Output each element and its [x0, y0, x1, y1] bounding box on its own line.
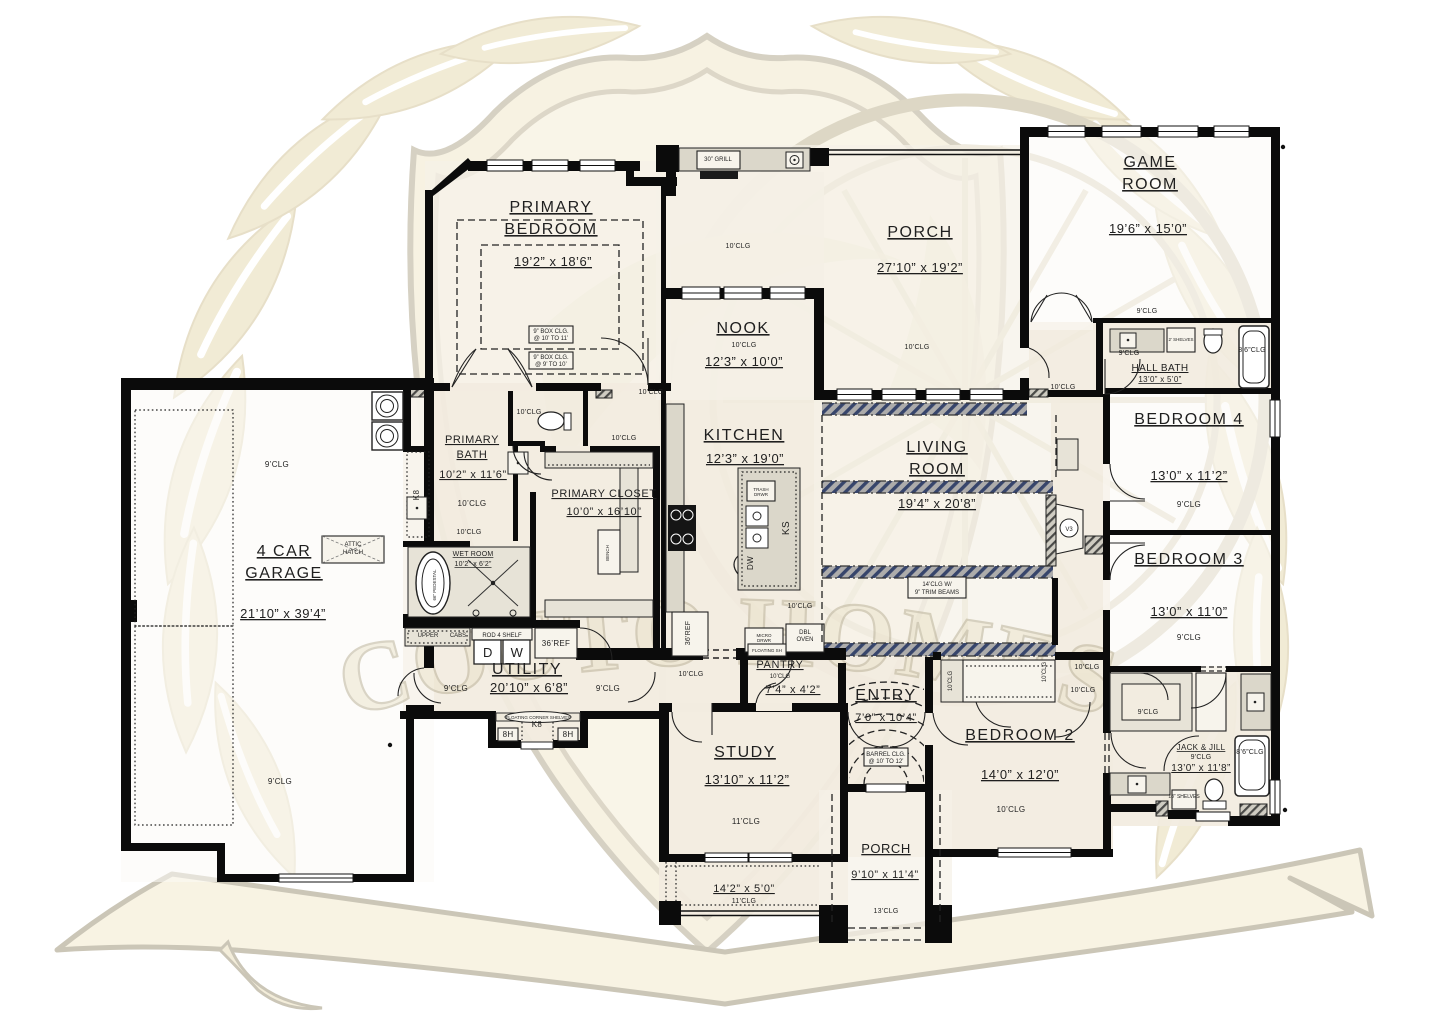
svg-text:WET ROOM: WET ROOM — [453, 551, 494, 558]
svg-text:10’CLG: 10’CLG — [517, 409, 542, 416]
svg-text:19’4” x 20’8”: 19’4” x 20’8” — [898, 496, 976, 511]
svg-text:36’REF: 36’REF — [542, 639, 570, 648]
svg-text:BEDROOM: BEDROOM — [504, 221, 597, 238]
svg-text:9” TRIM BEAMS: 9” TRIM BEAMS — [915, 590, 959, 596]
svg-text:21’10” x 39’4”: 21’10” x 39’4” — [240, 606, 326, 621]
svg-text:9” BOX CLG.: 9” BOX CLG. — [533, 329, 569, 335]
svg-text:36’REF: 36’REF — [685, 621, 692, 646]
svg-text:@ 10’ TO 11’: @ 10’ TO 11’ — [534, 336, 569, 342]
svg-text:14’CLG W/: 14’CLG W/ — [922, 582, 952, 588]
svg-text:9’CLG: 9’CLG — [268, 777, 292, 786]
svg-text:13’10” x 11’2”: 13’10” x 11’2” — [705, 772, 790, 787]
svg-text:10’CLG: 10’CLG — [732, 342, 757, 349]
svg-text:CABS: CABS — [450, 633, 466, 639]
svg-text:10’CLG: 10’CLG — [997, 805, 1026, 814]
svg-text:10’CLG: 10’CLG — [458, 499, 487, 508]
svg-text:8H: 8H — [563, 730, 574, 739]
svg-text:V3: V3 — [1065, 527, 1073, 533]
svg-text:JACK & JILL: JACK & JILL — [1177, 743, 1226, 752]
svg-text:NOOK: NOOK — [716, 320, 769, 337]
svg-text:9’10” x 11’4”: 9’10” x 11’4” — [851, 869, 919, 881]
svg-text:BENCH: BENCH — [605, 545, 610, 561]
svg-text:10’CLG: 10’CLG — [1071, 687, 1096, 694]
svg-text:BATH: BATH — [457, 449, 488, 461]
svg-text:UPPER: UPPER — [418, 633, 439, 639]
svg-text:FLOATING SH: FLOATING SH — [752, 648, 782, 653]
svg-text:K8: K8 — [412, 490, 421, 501]
svg-text:HATCH: HATCH — [343, 550, 363, 556]
svg-text:BEDROOM 3: BEDROOM 3 — [1134, 551, 1244, 568]
svg-text:BEDROOM 4: BEDROOM 4 — [1134, 411, 1244, 428]
svg-text:10’CLG: 10’CLG — [1042, 661, 1048, 682]
svg-text:9’CLG: 9’CLG — [1138, 709, 1159, 716]
svg-text:K8: K8 — [532, 720, 543, 729]
svg-text:14’0” x 12’0”: 14’0” x 12’0” — [981, 767, 1059, 782]
svg-text:13’0” x 11’0”: 13’0” x 11’0” — [1150, 604, 1227, 619]
svg-text:18” SHELVES: 18” SHELVES — [1168, 794, 1200, 800]
svg-text:9” BOX CLG.: 9” BOX CLG. — [533, 355, 569, 361]
svg-text:10’CLG: 10’CLG — [770, 674, 791, 680]
svg-text:11’CLG: 11’CLG — [732, 817, 760, 826]
svg-text:10’2” x 11’6”: 10’2” x 11’6” — [439, 469, 507, 481]
svg-text:PORCH: PORCH — [861, 841, 910, 856]
svg-text:9’CLG: 9’CLG — [1119, 350, 1140, 357]
svg-text:10’CLG: 10’CLG — [788, 603, 813, 610]
svg-text:PRIMARY: PRIMARY — [509, 199, 592, 216]
svg-text:DW: DW — [746, 556, 755, 570]
svg-text:ROD 4 SHELF: ROD 4 SHELF — [482, 633, 522, 639]
svg-text:ROOM: ROOM — [909, 461, 965, 478]
svg-text:9’CLG: 9’CLG — [1177, 500, 1201, 509]
svg-text:PORCH: PORCH — [887, 224, 952, 241]
svg-text:GAME: GAME — [1123, 154, 1176, 171]
svg-text:14’2” x 5’0”: 14’2” x 5’0” — [713, 883, 775, 895]
svg-text:10’CLG: 10’CLG — [726, 243, 751, 250]
svg-text:10’CLG: 10’CLG — [612, 435, 637, 442]
svg-text:12’3” x 19’0”: 12’3” x 19’0” — [706, 451, 784, 466]
svg-text:10’CLG: 10’CLG — [948, 670, 954, 691]
svg-text:30” GRILL: 30” GRILL — [704, 157, 732, 163]
svg-text:KS: KS — [781, 521, 792, 535]
svg-text:2’ SHELVES: 2’ SHELVES — [1168, 337, 1193, 342]
svg-text:8H: 8H — [503, 730, 514, 739]
svg-text:UTILITY: UTILITY — [492, 661, 562, 678]
svg-text:DBL: DBL — [799, 630, 811, 636]
svg-text:ATTIC: ATTIC — [345, 542, 363, 548]
svg-text:@ 10’ TO 12’: @ 10’ TO 12’ — [869, 759, 904, 765]
svg-text:BARREL CLG.: BARREL CLG. — [866, 752, 906, 758]
svg-text:10’CLG: 10’CLG — [1075, 664, 1100, 671]
svg-text:BEDROOM 2: BEDROOM 2 — [965, 727, 1075, 744]
svg-text:DRWR: DRWR — [757, 638, 772, 643]
svg-text:GARAGE: GARAGE — [245, 565, 322, 582]
svg-text:13’0” x 11’8”: 13’0” x 11’8” — [1171, 763, 1231, 774]
svg-text:PRIMARY: PRIMARY — [445, 434, 499, 446]
svg-text:10’CLG: 10’CLG — [679, 671, 704, 678]
svg-text:7’0” x 10’4”: 7’0” x 10’4” — [855, 712, 917, 724]
svg-text:66” PEDESTAL: 66” PEDESTAL — [432, 569, 437, 600]
svg-text:7’4” x 4’2”: 7’4” x 4’2” — [766, 684, 821, 696]
svg-text:4 CAR: 4 CAR — [257, 543, 312, 560]
svg-text:8’6”CLG: 8’6”CLG — [1236, 749, 1263, 756]
svg-text:10’CLG: 10’CLG — [1051, 384, 1076, 391]
svg-text:10’CLG: 10’CLG — [639, 389, 664, 396]
svg-text:9’CLG: 9’CLG — [596, 684, 620, 693]
svg-text:27’10” x 19’2”: 27’10” x 19’2” — [877, 260, 963, 275]
svg-text:PANTRY: PANTRY — [756, 659, 803, 671]
svg-text:9’CLG: 9’CLG — [1137, 308, 1158, 315]
svg-text:PRIMARY CLOSET: PRIMARY CLOSET — [551, 488, 656, 500]
svg-text:8’6”CLG: 8’6”CLG — [1238, 347, 1265, 354]
svg-text:10’0” x 16’10”: 10’0” x 16’10” — [566, 506, 641, 518]
svg-text:19’6” x 15’0”: 19’6” x 15’0” — [1109, 221, 1187, 236]
svg-text:10’CLG: 10’CLG — [905, 344, 930, 351]
svg-text:W: W — [511, 645, 524, 660]
svg-text:10’CLG: 10’CLG — [457, 529, 482, 536]
svg-text:STUDY: STUDY — [714, 744, 776, 761]
svg-text:12’3” x 10’0”: 12’3” x 10’0” — [705, 354, 783, 369]
svg-text:LIVING: LIVING — [906, 439, 967, 456]
svg-text:9’CLG: 9’CLG — [265, 460, 289, 469]
svg-text:20’10” x 6’8”: 20’10” x 6’8” — [490, 680, 568, 695]
svg-text:11’CLG: 11’CLG — [732, 898, 756, 905]
svg-text:19’2” x 18’6”: 19’2” x 18’6” — [514, 254, 592, 269]
svg-text:13’CLG: 13’CLG — [874, 908, 899, 915]
svg-text:13’0” x 11’2”: 13’0” x 11’2” — [1150, 468, 1227, 483]
svg-text:9’CLG: 9’CLG — [1177, 633, 1201, 642]
svg-text:OVEN: OVEN — [796, 637, 813, 643]
svg-text:9’CLG: 9’CLG — [444, 684, 468, 693]
svg-text:DRWR: DRWR — [754, 492, 769, 497]
svg-text:KITCHEN: KITCHEN — [704, 427, 785, 444]
svg-text:ENTRY: ENTRY — [855, 687, 916, 704]
svg-text:13’0” x 5’0”: 13’0” x 5’0” — [1138, 375, 1181, 384]
svg-text:ROOM: ROOM — [1122, 176, 1178, 193]
svg-text:10’2” x 6’2”: 10’2” x 6’2” — [454, 561, 491, 568]
svg-text:9’CLG: 9’CLG — [1191, 754, 1212, 761]
svg-text:HALL BATH: HALL BATH — [1132, 363, 1189, 374]
svg-text:@ 9’ TO 10’: @ 9’ TO 10’ — [535, 362, 567, 368]
svg-text:D: D — [483, 645, 493, 660]
